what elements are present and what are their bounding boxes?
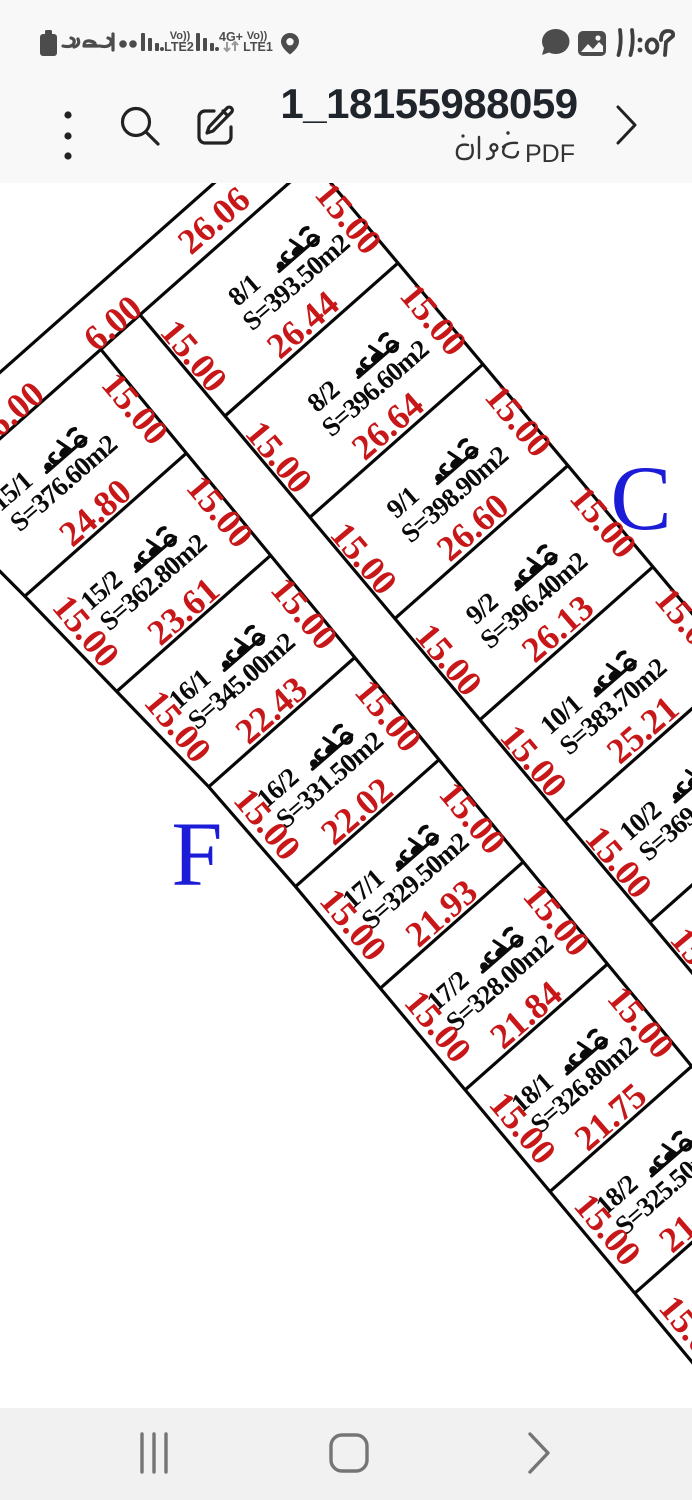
svg-text:C: C: [610, 447, 671, 549]
svg-text:15.00: 15.00: [647, 579, 692, 667]
svg-text:LTE2: LTE2: [164, 40, 194, 54]
svg-text:PDF: PDF: [525, 140, 575, 168]
svg-text:15.00: 15.00: [323, 514, 406, 602]
svg-text:4G+: 4G+: [219, 30, 243, 44]
svg-text:15.00: 15.00: [153, 312, 236, 400]
svg-text:LTE1: LTE1: [243, 40, 273, 54]
svg-text:15.00: 15.00: [662, 920, 692, 1008]
svg-text:26.00: 26.00: [0, 373, 52, 456]
svg-text:15.00: 15.00: [651, 1288, 692, 1376]
svg-text:15.00: 15.00: [238, 413, 321, 501]
svg-text:1_18155988059: 1_18155988059: [280, 80, 577, 127]
svg-text:F: F: [171, 803, 222, 905]
svg-text:6.00: 6.00: [76, 287, 150, 359]
